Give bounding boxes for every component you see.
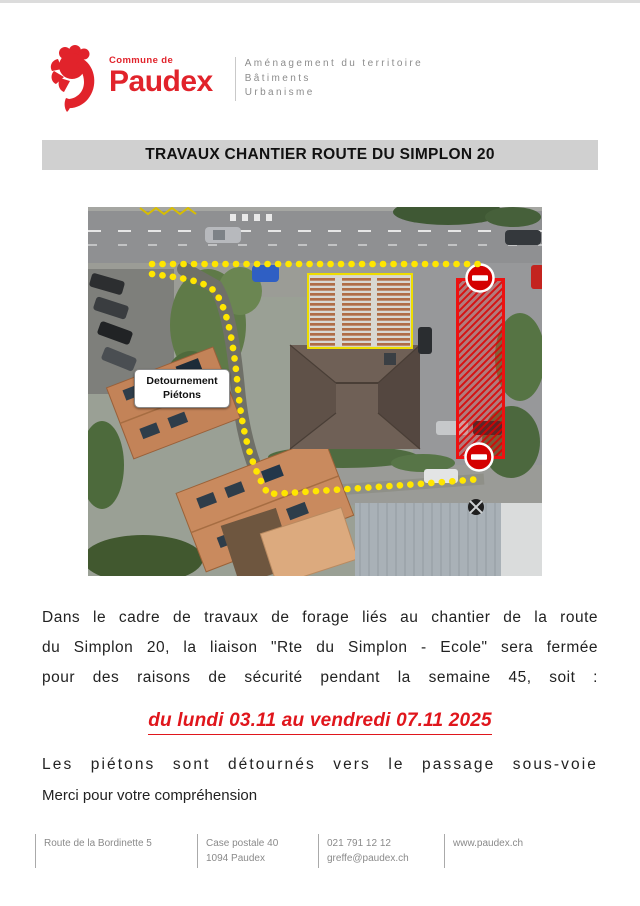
department-line-2: Bâtiments bbox=[245, 72, 423, 87]
footer-postal: Case postale 40 1094 Paudex bbox=[197, 834, 318, 868]
closure-dates: du lundi 03.11 au vendredi 07.11 2025 bbox=[42, 710, 598, 735]
page-title: TRAVAUX CHANTIER ROUTE DU SIMPLON 20 bbox=[42, 140, 598, 170]
commune-logo: Commune de Paudex bbox=[48, 45, 213, 113]
detour-label: Detournement Piétons bbox=[134, 369, 230, 408]
footer-address-line: Route de la Bordinette 5 bbox=[44, 836, 197, 851]
footer-email: greffe@paudex.ch bbox=[327, 851, 444, 866]
footer-contact: 021 791 12 12 greffe@paudex.ch bbox=[318, 834, 444, 868]
department-line-3: Urbanisme bbox=[245, 86, 423, 101]
no-entry-sign-bottom-icon bbox=[466, 444, 493, 471]
roof-building-modern bbox=[355, 499, 542, 576]
footer-postal-line1: Case postale 40 bbox=[206, 836, 318, 851]
header-divider bbox=[235, 57, 236, 101]
detour-label-line2: Piétons bbox=[137, 389, 227, 403]
yellow-outlined-building bbox=[307, 273, 413, 349]
footer-address: Route de la Bordinette 5 bbox=[35, 834, 197, 868]
footer-website-line: www.paudex.ch bbox=[453, 836, 584, 851]
thanks-sentence: Merci pour votre compréhension bbox=[42, 787, 598, 804]
notice-page: Commune de Paudex Aménagement du territo… bbox=[0, 0, 640, 906]
paragraph-line-2: du Simplon 20, la liaison "Rte du Simplo… bbox=[42, 633, 598, 663]
logo-text: Commune de Paudex bbox=[109, 55, 213, 97]
header: Commune de Paudex Aménagement du territo… bbox=[48, 45, 640, 113]
footer-postal-line2: 1094 Paudex bbox=[206, 851, 318, 866]
footer-website: www.paudex.ch bbox=[444, 834, 584, 868]
footer: Route de la Bordinette 5 Case postale 40… bbox=[35, 834, 584, 868]
paragraph-line-1: Dans le cadre de travaux de forage liés … bbox=[42, 603, 598, 633]
closure-dates-text: du lundi 03.11 au vendredi 07.11 2025 bbox=[148, 710, 492, 735]
no-entry-sign-top-icon bbox=[467, 265, 494, 292]
detour-label-line1: Detournement bbox=[137, 375, 227, 389]
rooster-logo-icon bbox=[48, 45, 102, 113]
department-list: Aménagement du territoire Bâtiments Urba… bbox=[245, 57, 423, 101]
footer-phone: 021 791 12 12 bbox=[327, 836, 444, 851]
department-line-1: Aménagement du territoire bbox=[245, 57, 423, 72]
body-paragraph: Dans le cadre de travaux de forage liés … bbox=[42, 603, 598, 693]
aerial-map: Detournement Piétons bbox=[88, 207, 542, 576]
paragraph-line-3: pour des raisons de sécurité pendant la … bbox=[42, 663, 598, 693]
detour-sentence: Les piétons sont détournés vers le passa… bbox=[42, 756, 598, 774]
logo-paudex: Paudex bbox=[109, 67, 213, 97]
roof-building-center bbox=[290, 345, 420, 449]
